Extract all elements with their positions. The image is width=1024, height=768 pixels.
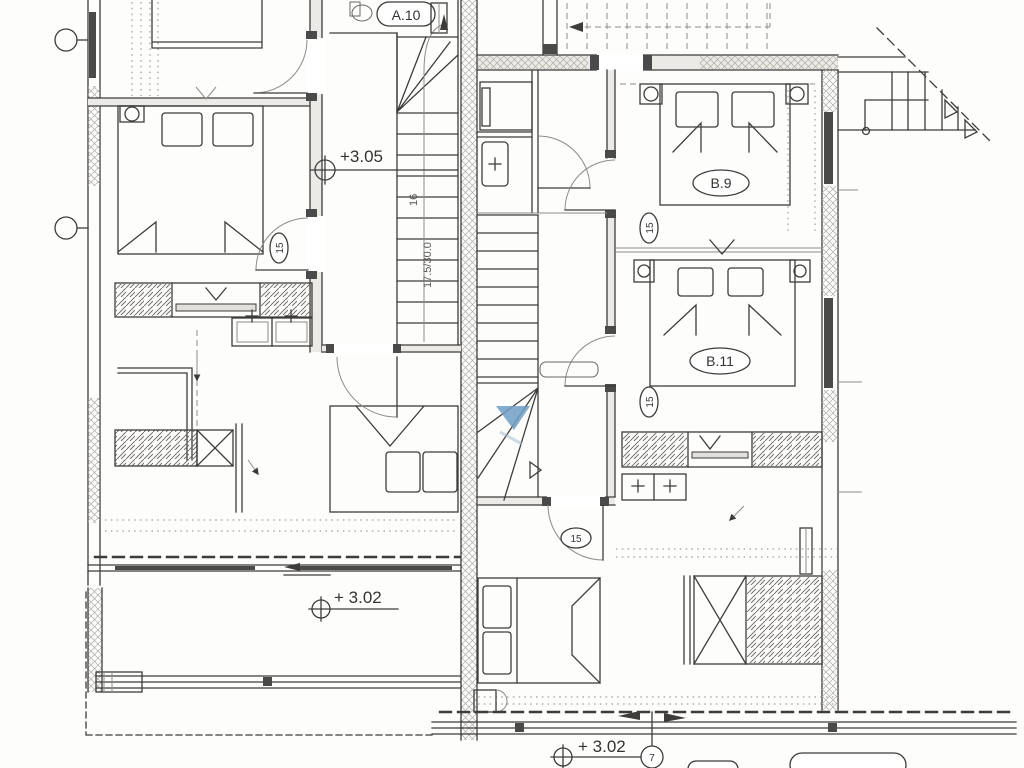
room-badge-b11: B.11 (690, 348, 750, 374)
stair-direction-arrow (530, 462, 541, 478)
unit-b-bottom-bedroom (474, 506, 838, 712)
stair-dimension-label: 17.5/30.0 (422, 242, 434, 288)
room-badge-partial (790, 753, 906, 768)
party-wall (461, 0, 477, 740)
door-width-badge: 15 (640, 387, 658, 417)
sink (482, 142, 508, 186)
nightstand-lamp (786, 84, 808, 104)
door-width-label: 15 (275, 242, 286, 254)
section-flag (664, 713, 686, 722)
unit-a-top-bedroom (132, 0, 307, 96)
level-value: +3.05 (340, 147, 383, 166)
door-width-label: 15 (645, 396, 656, 408)
door-swing (538, 136, 590, 188)
door-width-badge: 15 (561, 528, 591, 548)
room-badge-a10: A.10 (377, 2, 435, 26)
level-value: + 3.02 (334, 588, 382, 607)
stair-riser-count: 16 (408, 194, 420, 206)
door-swing (337, 357, 397, 417)
bed-partial (152, 0, 262, 48)
wall-vent-mark (196, 87, 216, 99)
nightstand-lamp (634, 260, 654, 282)
detail-circle: 7 (641, 746, 663, 768)
double-bed (118, 106, 263, 254)
cabinets (622, 474, 686, 500)
stair-up-arrow (569, 22, 583, 32)
level-value: + 3.02 (578, 737, 626, 756)
double-bed (478, 578, 600, 683)
unit-a-terrace: + 3.02 (86, 563, 460, 735)
unit-b-terrace: 7 + 3.02 (432, 711, 1016, 768)
room-b9: B.9 15 (565, 84, 822, 254)
door-width-badge: 15 (640, 213, 658, 243)
unit-a-wardrobes (115, 283, 312, 512)
door-swing (565, 336, 615, 386)
unit-a-walls (55, 0, 461, 585)
toilet (350, 2, 372, 21)
room-badge-b9: B.9 (693, 170, 749, 196)
stair-unit-b: 15 (478, 215, 603, 560)
door-width-label: 15 (645, 222, 656, 234)
floor-plan-drawing: 15 17.5/30.0 16 A.10 (0, 0, 1024, 768)
door-width-badge: 15 (270, 233, 288, 263)
stair-accent-blue (496, 406, 530, 430)
level-marker-terrace-a: + 3.02 (309, 588, 398, 621)
nightstand-lamp (790, 260, 810, 282)
unit-b-bathroom (478, 70, 607, 213)
nightstand-lamp (640, 84, 662, 104)
room-badge-partial (688, 761, 738, 768)
room-label: A.10 (392, 7, 421, 23)
door-width-label: 15 (570, 534, 582, 545)
external-stair (838, 28, 992, 143)
stair-above-dashed (567, 3, 770, 52)
room-label: B.11 (706, 353, 734, 369)
closet (684, 576, 822, 664)
wardrobe-lower (115, 424, 258, 512)
floor-plan-page: 15 17.5/30.0 16 A.10 (0, 0, 1024, 768)
terrace-door (474, 690, 507, 712)
stair-unit-a: 17.5/30.0 16 (337, 0, 458, 417)
unit-a-middle-bed (330, 406, 458, 512)
wardrobe-band (622, 432, 822, 467)
axis-marker-top (55, 29, 88, 51)
room-b11: B.11 15 (565, 260, 822, 500)
detail-number: 7 (649, 753, 655, 764)
level-marker-terrace-b: + 3.02 (551, 737, 641, 768)
unit-a-bedroom-2: 15 (118, 87, 308, 270)
radiator (800, 528, 812, 574)
axis-marker-bottom (55, 217, 88, 239)
level-marker-landing: +3.05 (311, 147, 458, 184)
nightstand-lamp (120, 106, 144, 122)
room-label: B.9 (710, 175, 731, 191)
stair-accent-smudge (500, 432, 522, 444)
